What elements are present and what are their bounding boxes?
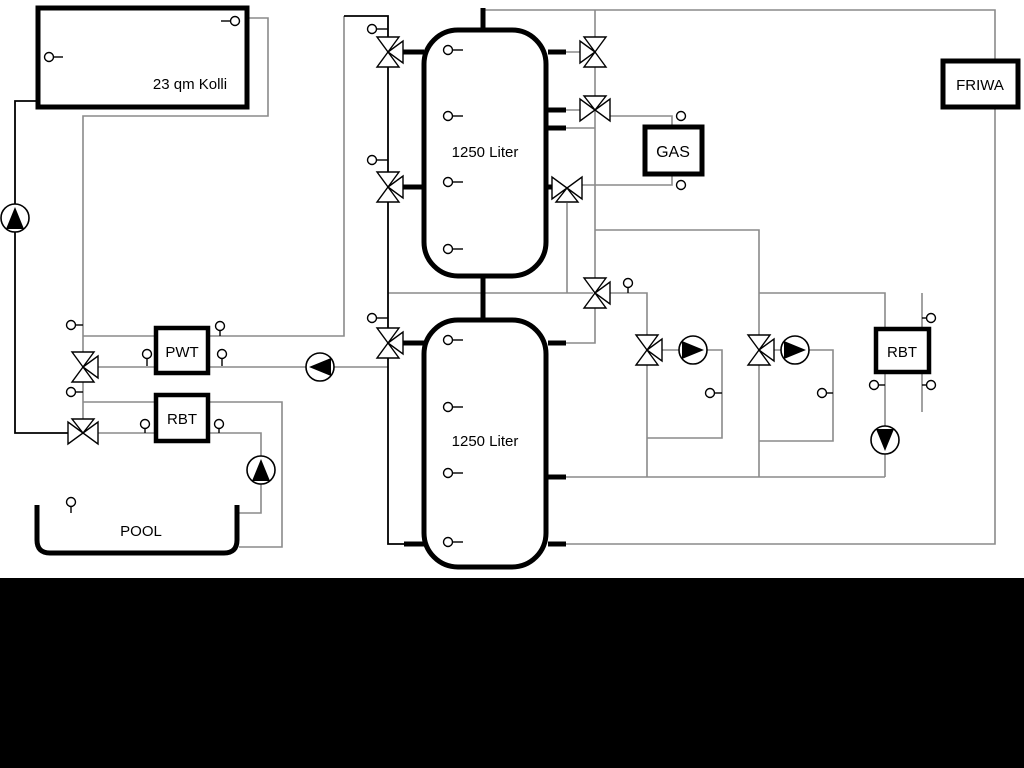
schematic-canvas: 23 qm Kolli 1250 Liter 1250 Liter GAS FR… <box>0 0 1024 768</box>
pwt-label: PWT <box>165 344 198 361</box>
buffer-tank-top-label: 1250 Liter <box>452 144 519 161</box>
temperature-sensor-icon <box>677 112 686 121</box>
pump-icon <box>781 336 809 364</box>
collector-label: 23 qm Kolli <box>153 76 227 93</box>
pump-icon <box>306 353 334 381</box>
rbt-right-label: RBT <box>887 344 917 361</box>
pump-icon <box>679 336 707 364</box>
pump-icon <box>1 204 29 232</box>
bottom-black-band <box>0 578 1024 768</box>
pool-label: POOL <box>120 523 162 540</box>
pump-icon <box>247 456 275 484</box>
pump-icon <box>871 426 899 454</box>
temperature-sensor-icon <box>677 181 686 190</box>
rbt-left-label: RBT <box>167 411 197 428</box>
friwa-label: FRIWA <box>956 77 1004 94</box>
hydraulic-schematic: 23 qm Kolli 1250 Liter 1250 Liter GAS FR… <box>0 0 1024 768</box>
buffer-tank-bottom-label: 1250 Liter <box>452 433 519 450</box>
gas-boiler-label: GAS <box>656 144 690 161</box>
